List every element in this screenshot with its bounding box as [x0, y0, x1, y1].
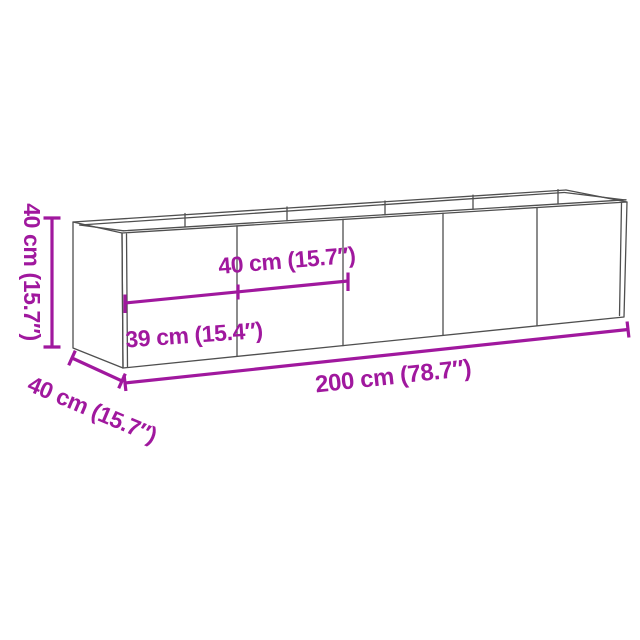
length-cap-left — [124, 375, 126, 391]
panel-width-dimension-label: 40 cm (15.7″) — [217, 242, 356, 279]
depth-dimension-line — [69, 351, 126, 389]
box-left-face — [73, 222, 123, 368]
height-dimension-line — [44, 218, 61, 347]
rim-left-inner-edge — [80, 225, 124, 231]
height-dimension-label: 40 cm (15.7″) — [19, 203, 45, 341]
dimension-labels: 40 cm (15.7″) 40 cm (15.7″) 39 cm (15.4″… — [19, 203, 473, 448]
diagram-canvas: 40 cm (15.7″) 40 cm (15.7″) 39 cm (15.4″… — [0, 0, 640, 640]
first-panel-dimension-label: 39 cm (15.4″) — [125, 317, 264, 353]
rim-front-inner-edge — [124, 200, 627, 231]
rim-right-inner-edge — [565, 193, 626, 201]
planter-dimension-diagram: 40 cm (15.7″) 40 cm (15.7″) 39 cm (15.4″… — [0, 0, 640, 640]
front-right-fold-line — [620, 203, 622, 316]
rim-back-outer-edge — [73, 190, 566, 222]
depth-line — [72, 358, 122, 381]
length-cap-right — [627, 322, 629, 338]
